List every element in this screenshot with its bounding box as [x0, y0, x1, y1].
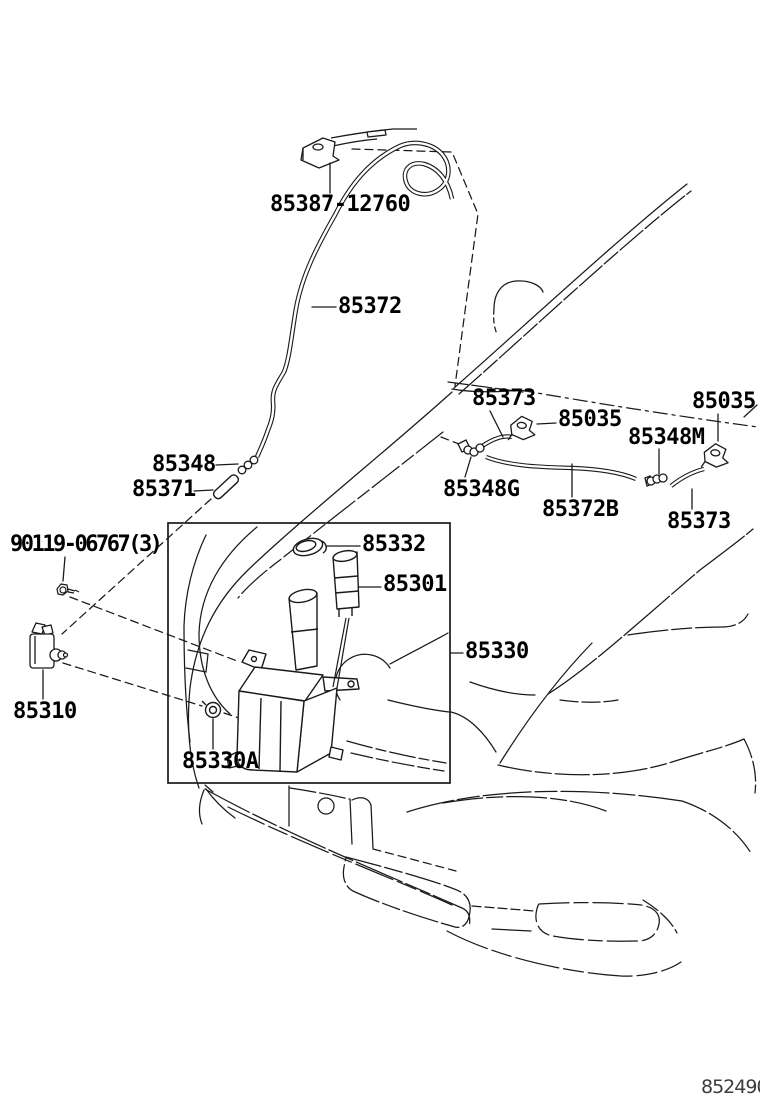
part-label-85348: 85348 — [152, 454, 216, 476]
bumper-top-edge — [205, 789, 470, 927]
construction-lines — [62, 149, 478, 752]
filler-cap-85332 — [291, 535, 326, 558]
leader-85348G — [465, 457, 471, 477]
part-label-85373-lower: 85373 — [667, 511, 731, 533]
part-label-85035-right: 85035 — [692, 391, 756, 413]
dash-bolt-to-tank — [70, 597, 237, 661]
leader-85348 — [216, 464, 238, 465]
wheel-arch — [498, 739, 744, 775]
hose-joint-85348M — [645, 474, 667, 486]
license-bolt-hole — [318, 798, 334, 814]
part-label-85330A: 85330A — [182, 751, 258, 773]
bumper-corner — [206, 789, 235, 818]
side-mirror — [494, 281, 543, 309]
car-outline — [184, 184, 758, 976]
part-label-85310: 85310 — [13, 701, 77, 723]
washer-motor-85301 — [332, 549, 359, 688]
leader-85371 — [194, 490, 213, 491]
leader-90119 — [63, 557, 65, 581]
a-pillar-line-inner — [459, 191, 691, 394]
dash-hose-to-pump — [62, 499, 211, 634]
part-label-85332: 85332 — [362, 534, 426, 556]
part-label-85371: 85371 — [132, 479, 196, 501]
hood-right-edge — [548, 529, 753, 694]
hose-85371 — [212, 473, 240, 500]
part-label-85035-left: 85035 — [558, 409, 622, 431]
part-label-90119-06767: 90119-06767(3) — [10, 534, 160, 556]
grommet-85330A — [202, 701, 221, 718]
leader-lines — [43, 163, 718, 749]
figure-code: 852490 — [701, 1078, 760, 1097]
parts-diagram-page: 85387-12760 85372 85373 85035 85348M 850… — [0, 0, 760, 1112]
hose-joint-85348 — [238, 456, 258, 474]
part-label-85372B: 85372B — [542, 499, 618, 521]
grille-slot-right — [536, 903, 659, 942]
part-label-85301: 85301 — [383, 574, 447, 596]
leader-85035-left — [537, 423, 556, 424]
dash-pump-to-grommet — [63, 663, 202, 706]
dash-nozzle-to-cowl — [352, 149, 478, 386]
nozzle-85035-right — [701, 442, 730, 470]
part-label-85372: 85372 — [338, 296, 402, 318]
part-label-85330: 85330 — [465, 641, 529, 663]
part-label-85348M: 85348M — [628, 427, 704, 449]
leader-85373-left — [490, 411, 503, 437]
nozzle-85035-left — [508, 415, 536, 443]
hose-joint-85348G — [458, 440, 484, 456]
washer-pump-85310 — [30, 623, 68, 668]
grille-slot-left — [343, 857, 470, 927]
part-label-85348G: 85348G — [443, 479, 519, 501]
part-label-85387-12760: 85387-12760 — [270, 194, 410, 216]
side-mirror-lower — [494, 309, 497, 334]
part-label-85373-upper: 85373 — [472, 388, 536, 410]
mounting-bolt-90119 — [57, 584, 79, 595]
a-pillar-line — [454, 184, 687, 388]
